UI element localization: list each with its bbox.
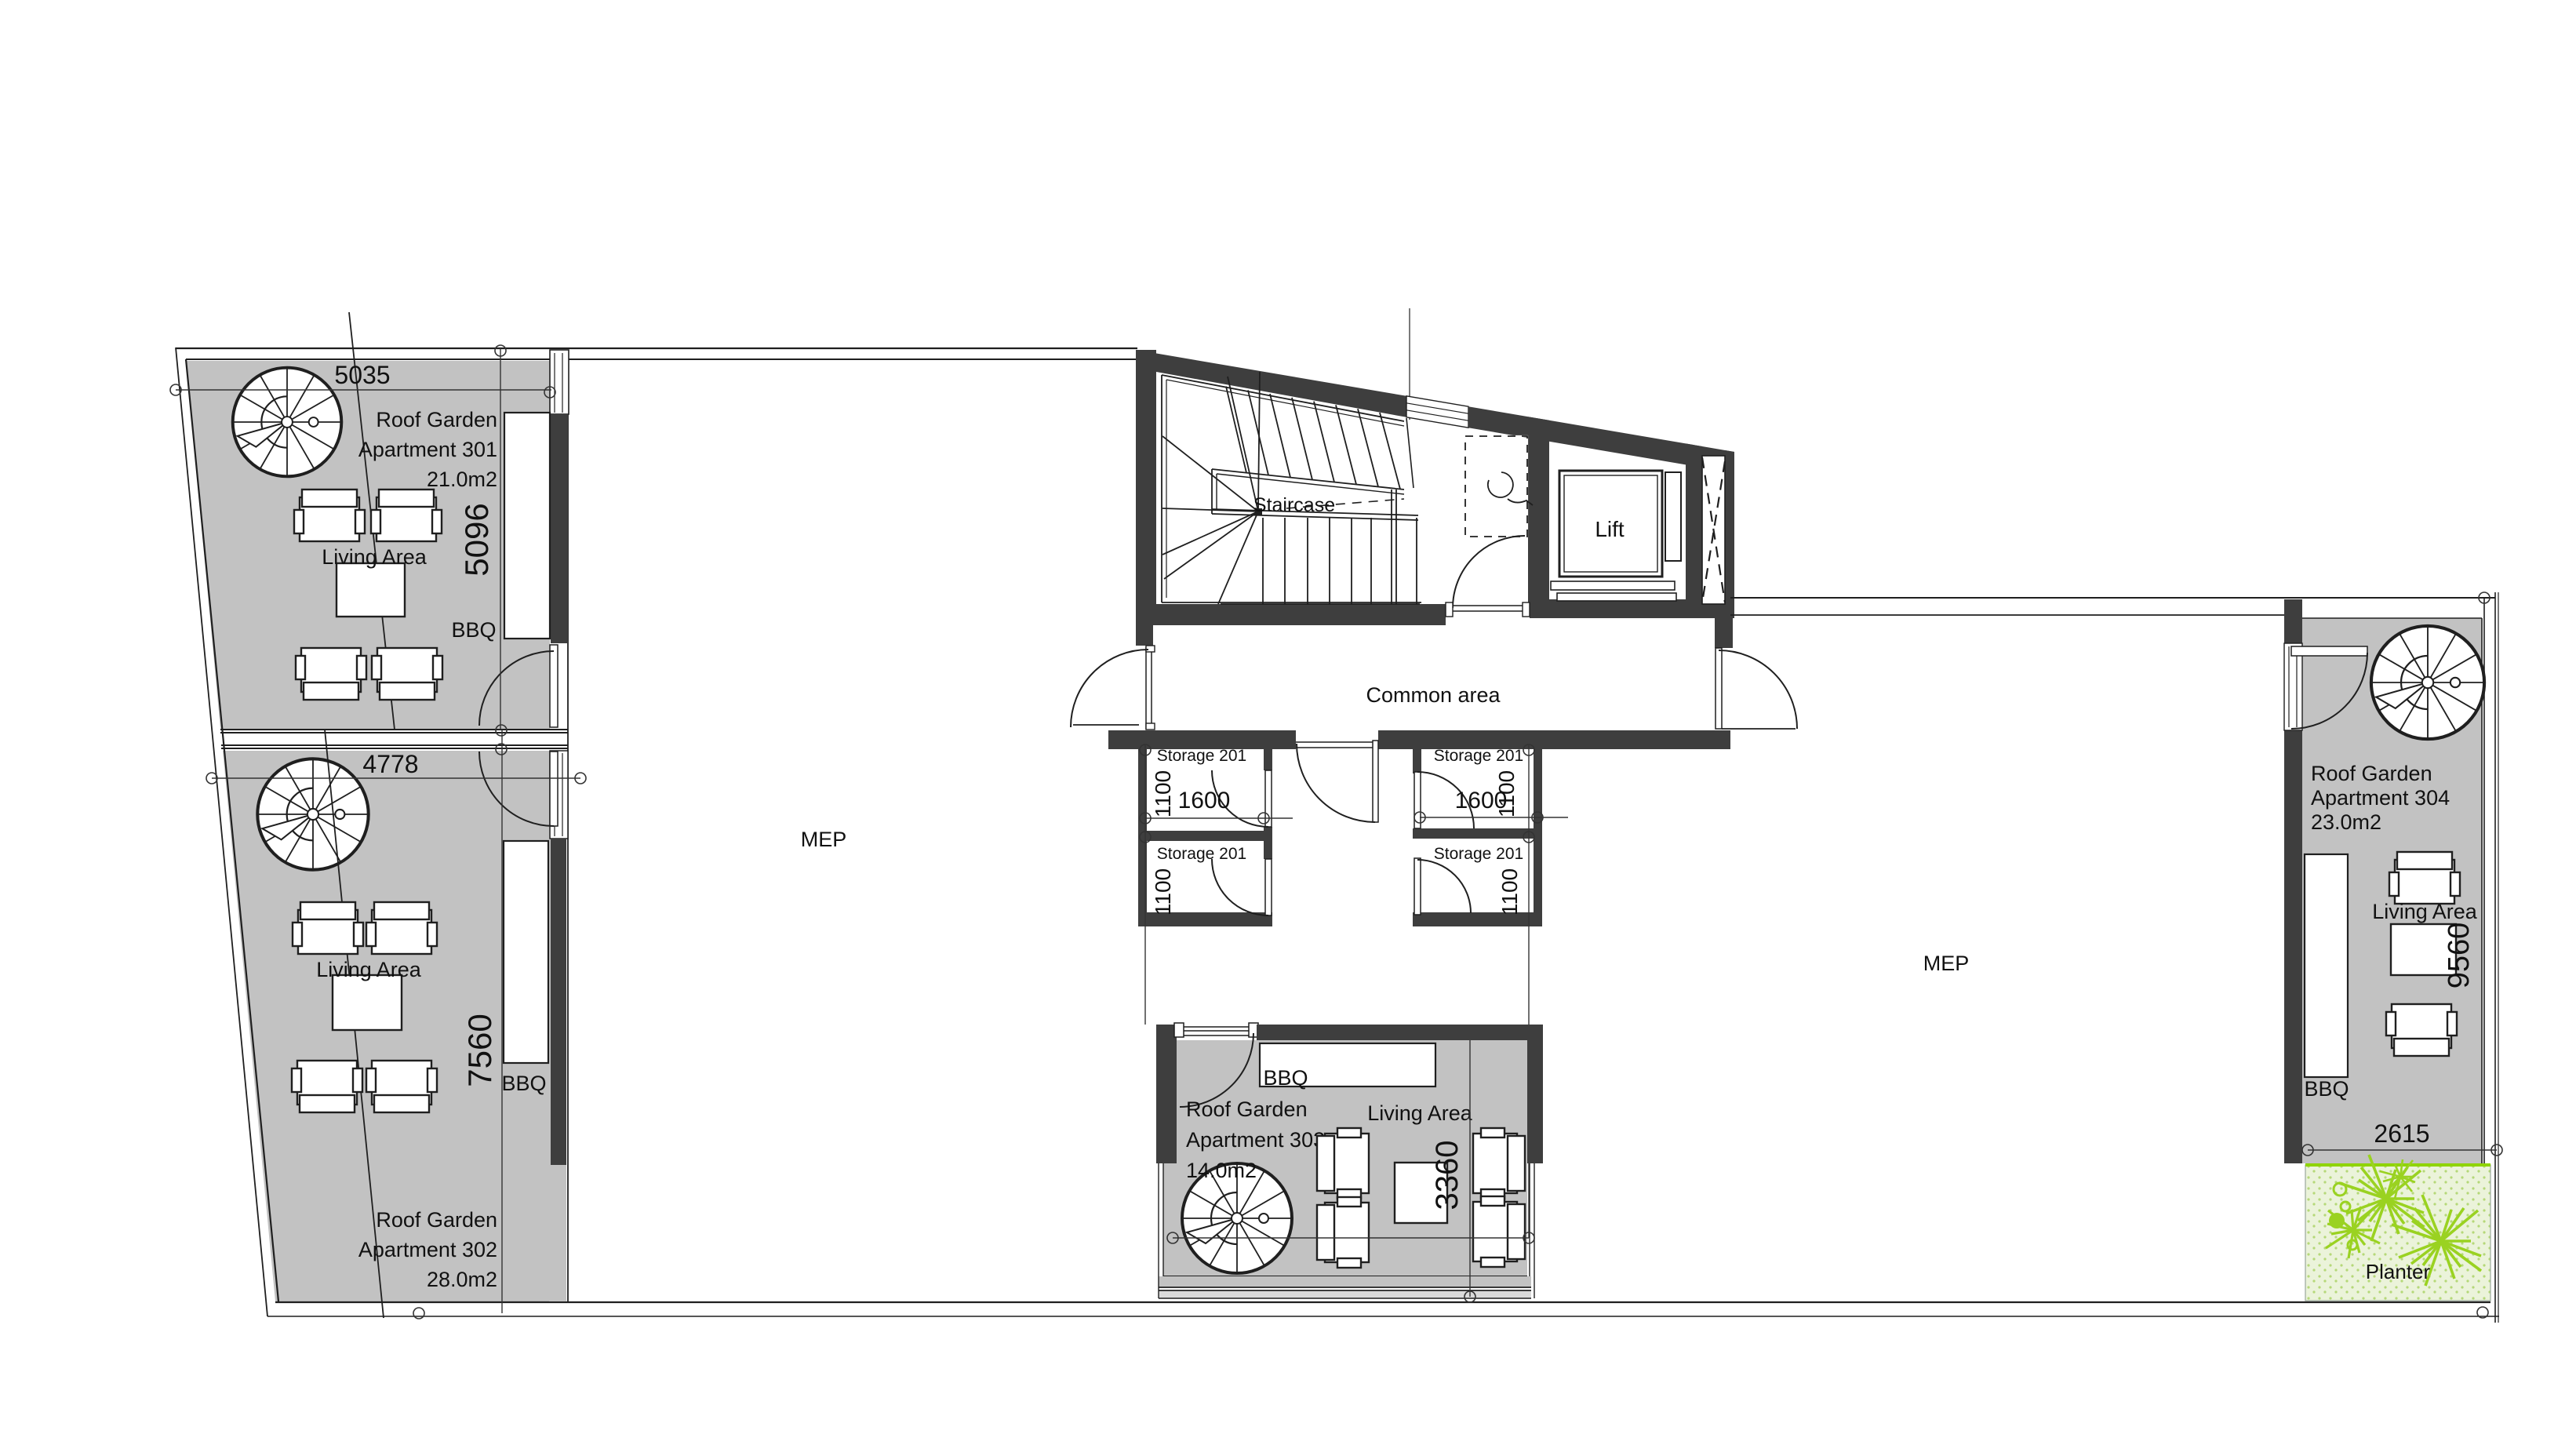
svg-text:5096: 5096 [458, 503, 495, 576]
svg-text:28.0m2: 28.0m2 [427, 1268, 497, 1291]
svg-text:MEP: MEP [1923, 952, 1970, 975]
svg-text:Storage 201: Storage 201 [1434, 845, 1523, 863]
svg-text:Apartment 302: Apartment 302 [358, 1238, 497, 1261]
svg-text:1600: 1600 [1178, 788, 1231, 813]
svg-text:23.0m2: 23.0m2 [2311, 810, 2381, 834]
svg-text:2615: 2615 [2374, 1119, 2429, 1148]
svg-text:Storage 201: Storage 201 [1157, 845, 1246, 863]
svg-text:Roof Garden: Roof Garden [1186, 1097, 1308, 1121]
svg-text:4778: 4778 [362, 750, 418, 778]
svg-text:Roof Garden: Roof Garden [376, 1208, 497, 1232]
svg-text:BBQ: BBQ [1263, 1066, 1308, 1090]
svg-text:Living Area: Living Area [2372, 900, 2478, 923]
svg-text:21.0m2: 21.0m2 [427, 468, 497, 491]
svg-text:Roof Garden: Roof Garden [2311, 762, 2432, 785]
svg-text:Planter: Planter [2366, 1260, 2431, 1283]
svg-text:BBQ: BBQ [501, 1072, 546, 1095]
svg-text:7560: 7560 [461, 1014, 498, 1086]
svg-text:BBQ: BBQ [451, 618, 496, 642]
svg-text:5035: 5035 [334, 361, 390, 389]
svg-text:1100: 1100 [1494, 770, 1519, 817]
svg-text:BBQ: BBQ [2304, 1077, 2349, 1101]
svg-text:Storage 201: Storage 201 [1434, 747, 1523, 765]
svg-text:Roof Garden: Roof Garden [376, 408, 497, 431]
svg-text:1100: 1100 [1151, 770, 1175, 817]
svg-text:Apartment 304: Apartment 304 [2311, 786, 2450, 810]
svg-text:Living Area: Living Area [316, 958, 422, 981]
svg-text:1100: 1100 [1151, 868, 1175, 915]
svg-text:3360: 3360 [1430, 1141, 1464, 1210]
svg-text:Living Area: Living Area [1367, 1101, 1473, 1125]
svg-text:Common area: Common area [1366, 683, 1501, 707]
svg-text:14.0m2: 14.0m2 [1186, 1159, 1257, 1182]
svg-text:MEP: MEP [801, 828, 847, 851]
svg-text:1100: 1100 [1497, 868, 1522, 915]
svg-text:Apartment 301: Apartment 301 [358, 438, 497, 461]
svg-text:Living Area: Living Area [322, 545, 428, 569]
svg-text:Storage 201: Storage 201 [1157, 747, 1246, 765]
svg-text:9560: 9560 [2443, 923, 2476, 989]
svg-text:Staircase: Staircase [1253, 494, 1335, 516]
svg-text:Apartment 303: Apartment 303 [1186, 1128, 1325, 1152]
svg-text:Lift: Lift [1595, 517, 1625, 541]
